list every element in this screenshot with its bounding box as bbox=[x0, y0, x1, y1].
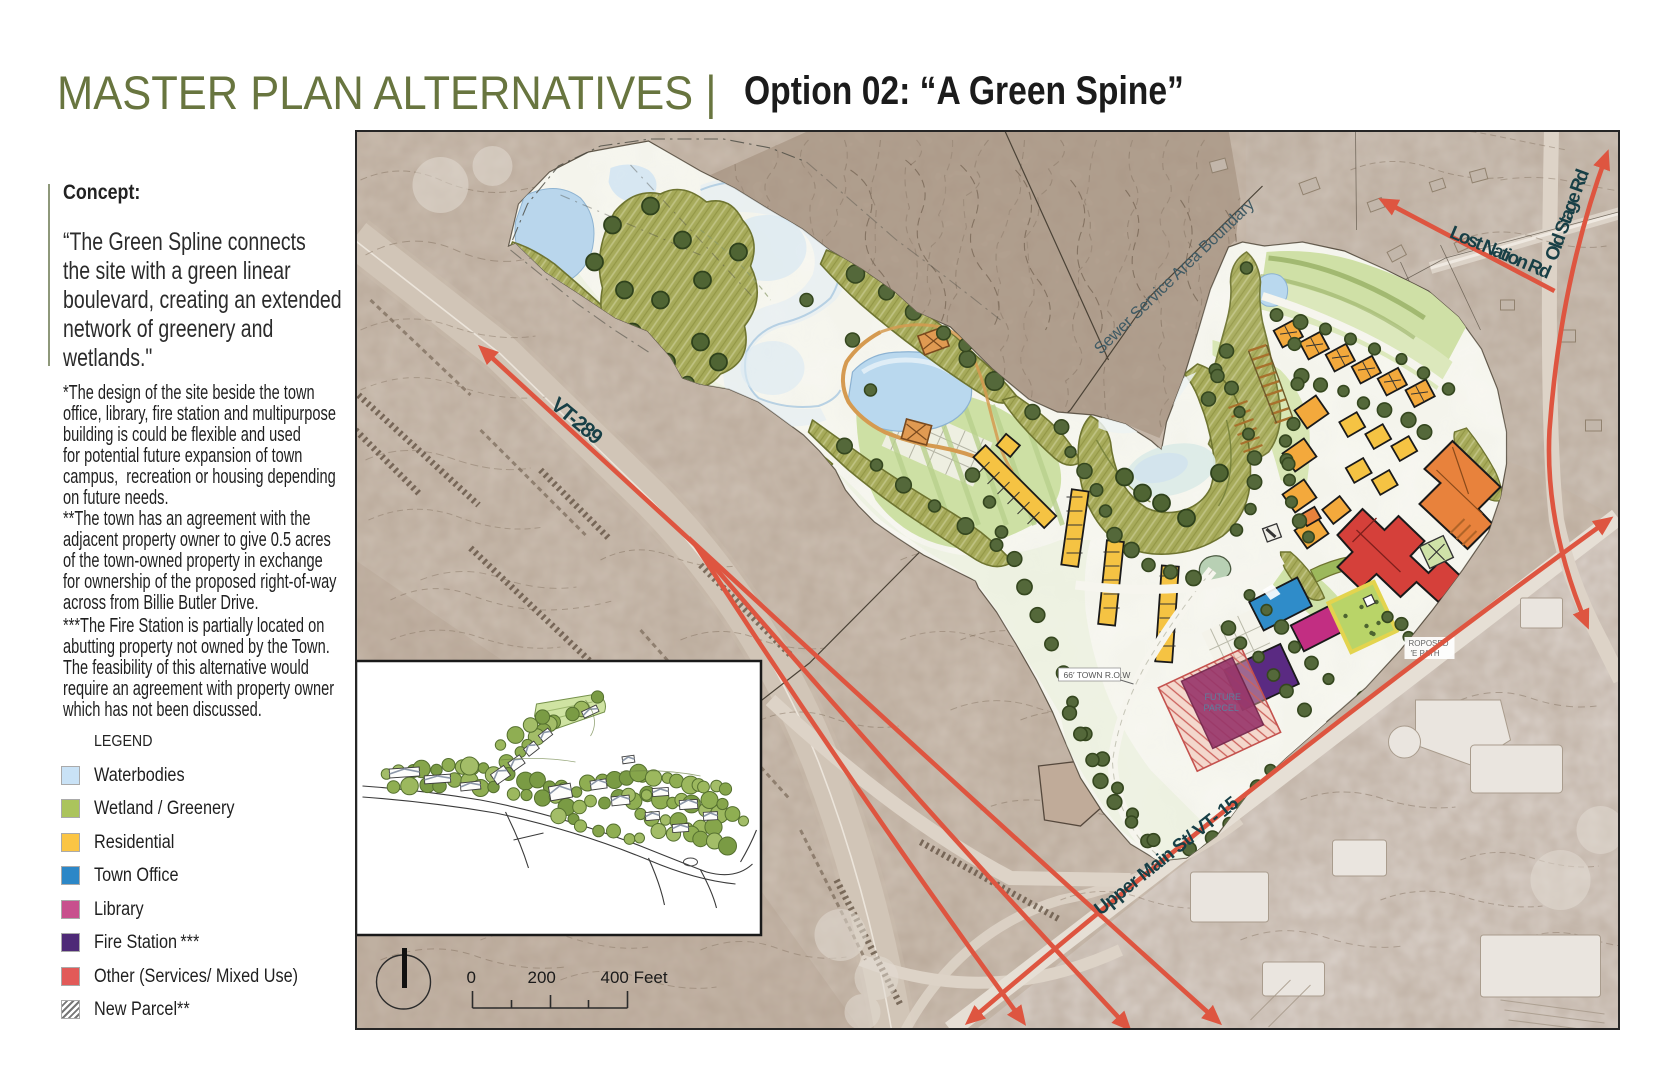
svg-text:PARCEL: PARCEL bbox=[1203, 703, 1238, 713]
svg-text:200: 200 bbox=[527, 968, 555, 987]
svg-text:400 Feet: 400 Feet bbox=[600, 968, 667, 987]
svg-text:0: 0 bbox=[466, 968, 475, 987]
svg-text:66′ TOWN R.O.W: 66′ TOWN R.O.W bbox=[1063, 670, 1130, 680]
svg-text:FUTURE: FUTURE bbox=[1204, 692, 1241, 702]
